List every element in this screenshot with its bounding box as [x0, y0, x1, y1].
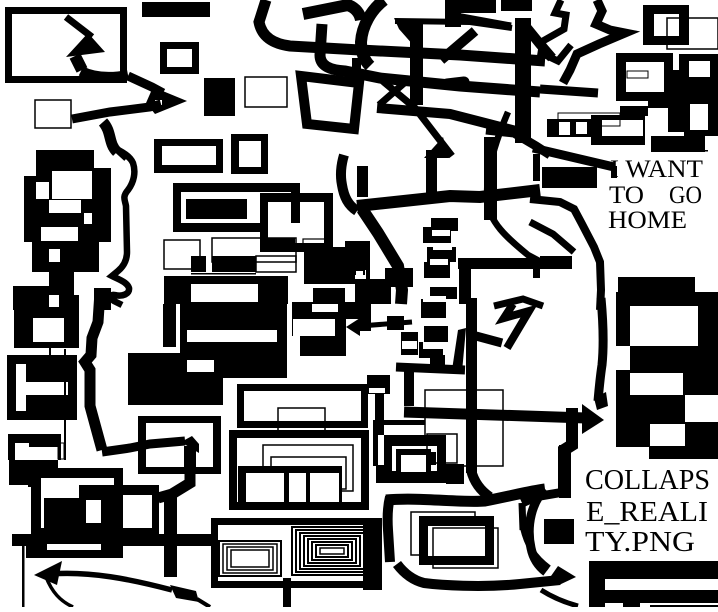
svg-text:HOME: HOME	[608, 207, 687, 234]
svg-text:COLLAPS: COLLAPS	[585, 464, 710, 496]
svg-text:GO: GO	[669, 182, 702, 209]
svg-text:E_REALI: E_REALI	[586, 496, 708, 528]
svg-text:TO: TO	[609, 182, 644, 209]
svg-text:TY.PNG: TY.PNG	[585, 526, 695, 558]
svg-text:I WANT: I WANT	[610, 156, 703, 183]
